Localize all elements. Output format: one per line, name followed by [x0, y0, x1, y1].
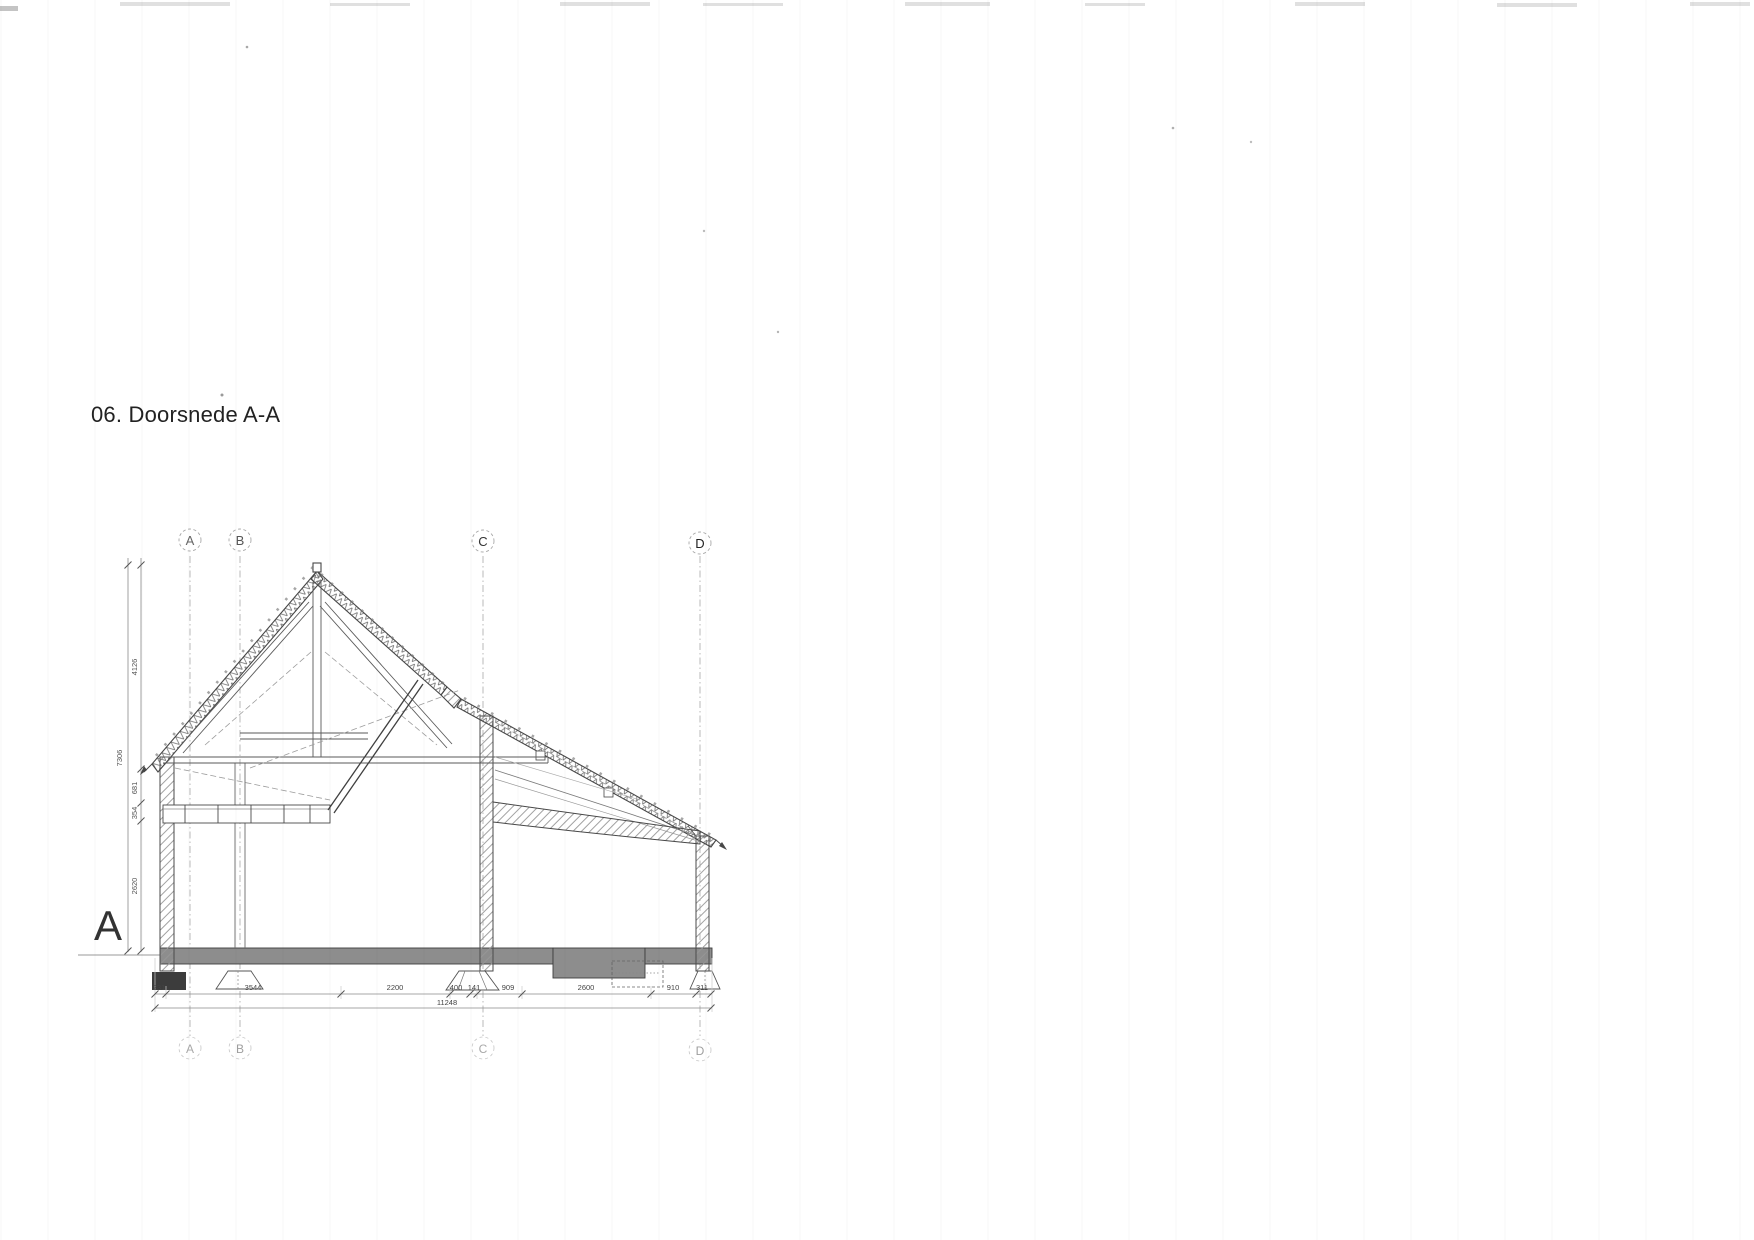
grid-bubbles-bottom: A B C D — [179, 1037, 711, 1061]
vertical-dimension-labels: 4126 7306 681 354 2620 — [115, 659, 139, 895]
dim-h-909: 909 — [502, 983, 515, 992]
wall-d — [696, 836, 709, 971]
roof-left-slope — [152, 571, 323, 772]
walls — [160, 716, 709, 971]
grid-label-d-top: D — [695, 536, 704, 551]
scanned-drawing-page: 06. Doorsnede A-A — [0, 0, 1754, 1240]
wall-left — [160, 757, 174, 971]
dim-h-total: 11248 — [437, 998, 457, 1007]
dim-h-2200: 2200 — [387, 983, 404, 992]
dim-v-total: 7306 — [115, 750, 124, 767]
grid-label-b-top: B — [236, 533, 245, 548]
grid-label-b-bottom: B — [236, 1042, 244, 1056]
dim-v-354: 354 — [130, 807, 139, 820]
roof-right-slope — [311, 571, 447, 695]
dim-h-400: 400 — [450, 983, 463, 992]
grid-label-c-bottom: C — [479, 1042, 488, 1056]
wall-c — [480, 716, 493, 971]
scan-artifacts — [0, 2, 1750, 397]
dim-v-2620: 2620 — [130, 878, 139, 895]
dim-h-2600: 2600 — [578, 983, 595, 992]
dim-h-910: 910 — [667, 983, 680, 992]
sloped-ceiling-member — [328, 680, 423, 813]
dim-h-3544: 3544 — [245, 983, 262, 992]
section-marker-letter: A — [94, 902, 122, 949]
grid-label-a-bottom: A — [186, 1042, 194, 1056]
dim-v-681: 681 — [130, 782, 139, 795]
dim-h-141: 141 — [468, 983, 481, 992]
grid-bubbles-top: A B C D — [179, 529, 711, 554]
section-drawing: A B C D A B C D — [0, 0, 1754, 1240]
dim-h-231: 231 — [153, 983, 166, 992]
dim-v-4126: 4126 — [130, 659, 139, 676]
mezzanine-floor — [163, 805, 330, 823]
grid-label-c-top: C — [478, 534, 487, 549]
grid-label-d-bottom: D — [696, 1044, 705, 1058]
grid-label-a-top: A — [186, 533, 195, 548]
ridge-cap — [313, 563, 321, 572]
dim-h-311: 311 — [696, 983, 708, 992]
